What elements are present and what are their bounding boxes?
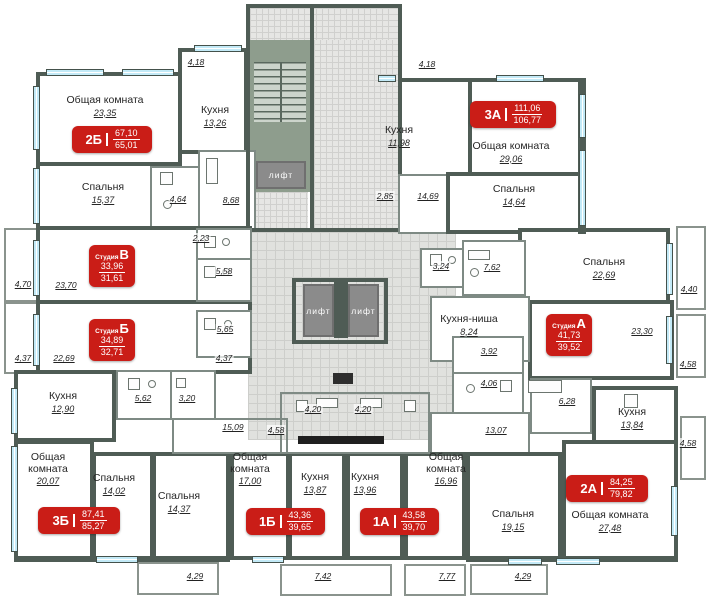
room-name: Кухня xyxy=(618,407,646,419)
balcony xyxy=(470,564,548,595)
fixture-icon xyxy=(470,268,479,277)
fixture-icon xyxy=(148,380,156,388)
wall-segment xyxy=(334,282,348,338)
dimension-label: 4,58 xyxy=(679,438,698,448)
living-area: 79,82 xyxy=(610,489,633,500)
fixture-icon xyxy=(404,400,416,412)
elevator-label: лифт xyxy=(306,306,330,316)
dimension-label: 4,29 xyxy=(186,571,205,581)
room-area: 13,84 xyxy=(618,420,646,430)
dimension-label: 8,68 xyxy=(222,195,241,205)
room-label: Спальня14,64 xyxy=(493,184,535,207)
balcony xyxy=(680,416,706,480)
fixture-icon xyxy=(128,378,140,390)
total-area: 87,41 xyxy=(80,509,107,521)
total-area: 43,36 xyxy=(287,510,314,522)
room-name: Спальня xyxy=(583,257,625,269)
window xyxy=(579,150,586,226)
dimension-label: 15,09 xyxy=(221,422,244,432)
room-area: 17,00 xyxy=(221,476,279,486)
apartment-badge[interactable]: 2Б67,1065,01 xyxy=(72,126,152,153)
badge-header: СтудияА xyxy=(552,317,586,330)
room-name: Кухня xyxy=(201,105,229,117)
window xyxy=(194,45,242,52)
apartment-badge[interactable]: 3А111,06106,77 xyxy=(470,101,556,128)
room-name: Спальня xyxy=(93,473,135,485)
balcony xyxy=(137,562,219,595)
room-label: Кухня13,87 xyxy=(301,472,329,495)
dimension-label: 4,20 xyxy=(304,404,323,414)
window xyxy=(33,168,40,224)
dimension-label: 4,37 xyxy=(14,353,33,363)
room-name: Спальня xyxy=(493,184,535,196)
apartment-code: 1Б xyxy=(253,515,282,528)
dimension-label: 3,24 xyxy=(432,261,451,271)
room-label: Спальня14,37 xyxy=(158,491,200,514)
living-area: 65,01 xyxy=(115,140,138,151)
living-area: 31,61 xyxy=(101,273,124,284)
apartment-code: Б xyxy=(120,322,129,335)
room-area: 13,96 xyxy=(351,485,379,495)
dimension-label: 4,06 xyxy=(480,378,499,388)
room-label: Общая комната27,48 xyxy=(572,510,649,533)
dimension-label: 4,64 xyxy=(169,194,188,204)
apartment-badge[interactable]: СтудияА41,7339,52 xyxy=(546,314,592,356)
dimension-label: 4,40 xyxy=(680,284,699,294)
dimension-label: 2,23 xyxy=(192,233,211,243)
badge-areas: 84,2579,82 xyxy=(603,477,640,500)
fixture-icon xyxy=(176,378,186,388)
wall-segment xyxy=(333,373,353,384)
room-label: Кухня11,98 xyxy=(385,125,413,148)
living-area: 85,27 xyxy=(82,521,105,532)
room-name: Кухня xyxy=(351,472,379,484)
room-name: Общая комната xyxy=(19,452,77,475)
window xyxy=(252,556,284,563)
apartment-code: 2Б xyxy=(79,133,108,146)
room-box xyxy=(452,336,524,376)
badge-areas: 33,9631,61 xyxy=(94,261,131,284)
living-area: 106,77 xyxy=(514,115,542,126)
room-label: Спальня19,15 xyxy=(492,509,534,532)
room-box xyxy=(196,258,252,302)
fixture-icon xyxy=(528,380,562,393)
room-box xyxy=(346,452,404,560)
room-box xyxy=(466,452,562,562)
apartment-badge[interactable]: 1Б43,3639,65 xyxy=(246,508,325,535)
fixture-icon xyxy=(466,384,475,393)
fixture-icon xyxy=(160,172,173,185)
room-name: Общая комната xyxy=(417,452,475,475)
living-area: 32,71 xyxy=(101,347,124,358)
apartment-badge[interactable]: СтудияБ34,8932,71 xyxy=(89,319,135,361)
room-name: Кухня xyxy=(385,125,413,137)
total-area: 84,25 xyxy=(608,477,635,489)
apartment-code: А xyxy=(577,317,586,330)
room-area: 12,90 xyxy=(49,404,77,414)
dimension-label: 5,65 xyxy=(216,324,235,334)
dimension-label: 6,28 xyxy=(558,396,577,406)
room-label: Спальня22,69 xyxy=(583,257,625,280)
apartment-code: 2А xyxy=(574,482,603,495)
room-name: Общая комната xyxy=(473,141,550,153)
badge-header: СтудияБ xyxy=(95,322,129,335)
total-area: 67,10 xyxy=(113,128,140,140)
room-area: 8,24 xyxy=(440,327,498,337)
window xyxy=(96,556,138,563)
room-area: 29,06 xyxy=(473,154,550,164)
window xyxy=(508,558,542,565)
window xyxy=(378,75,396,82)
fixture-icon xyxy=(500,380,512,392)
living-area: 39,65 xyxy=(289,522,312,533)
dimension-label: 4,18 xyxy=(418,59,437,69)
badge-areas: 87,4185,27 xyxy=(75,509,112,532)
window xyxy=(11,388,18,434)
room-name: Спальня xyxy=(82,182,124,194)
room-label: Кухня13,84 xyxy=(618,407,646,430)
room-name: Спальня xyxy=(492,509,534,521)
room-name: Спальня xyxy=(158,491,200,503)
apartment-badge[interactable]: 3Б87,4185,27 xyxy=(38,507,120,534)
apartment-badge[interactable]: 1А43,5839,70 xyxy=(360,508,439,535)
dimension-label: 7,62 xyxy=(483,262,502,272)
room-name: Кухня xyxy=(301,472,329,484)
room-label: Общая комната16,96 xyxy=(417,452,475,486)
apartment-badge[interactable]: 2А84,2579,82 xyxy=(566,475,648,502)
dimension-label: 4,37 xyxy=(215,353,234,363)
room-box xyxy=(288,452,346,560)
fixture-icon xyxy=(468,250,490,260)
room-label: Спальня14,02 xyxy=(93,473,135,496)
dimension-label: 4,70 xyxy=(14,279,33,289)
room-label: Общая комната23,35 xyxy=(67,95,144,118)
apartment-code: 3Б xyxy=(46,514,75,527)
room-label: Спальня15,37 xyxy=(82,182,124,205)
badge-areas: 43,5839,70 xyxy=(396,510,433,533)
fixture-icon xyxy=(222,238,230,246)
room-label: Кухня13,26 xyxy=(201,105,229,128)
apartment-code: В xyxy=(120,248,129,261)
total-area: 111,06 xyxy=(512,103,542,115)
dimension-label: 3,92 xyxy=(480,346,499,356)
badge-areas: 67,1065,01 xyxy=(108,128,145,151)
living-area: 39,70 xyxy=(403,522,426,533)
room-area: 13,26 xyxy=(201,118,229,128)
elevator-car: лифт xyxy=(303,284,334,337)
room-label: Кухня-ниша8,24 xyxy=(440,314,498,337)
window xyxy=(556,558,600,565)
elevator-car: лифт xyxy=(256,161,306,189)
room-area: 16,96 xyxy=(417,476,475,486)
room-name: Общая комната xyxy=(572,510,649,522)
badge-header: СтудияВ xyxy=(95,248,129,261)
window xyxy=(666,243,673,295)
room-name: Общая комната xyxy=(221,452,279,475)
room-area: 14,02 xyxy=(93,486,135,496)
window xyxy=(671,486,678,536)
badge-areas: 43,3639,65 xyxy=(282,510,319,533)
room-area: 14,64 xyxy=(493,197,535,207)
dimension-label: 23,70 xyxy=(54,280,77,290)
room-area: 14,37 xyxy=(158,504,200,514)
room-label: Общая комната29,06 xyxy=(473,141,550,164)
room-area: 27,48 xyxy=(572,523,649,533)
dimension-label: 13,07 xyxy=(484,425,507,435)
elevator-car: лифт xyxy=(348,284,379,337)
window xyxy=(496,75,544,82)
total-area: 41,73 xyxy=(556,330,583,342)
window xyxy=(33,314,40,366)
dimension-label: 14,69 xyxy=(416,191,439,201)
balcony xyxy=(404,564,466,596)
window xyxy=(11,446,18,552)
window xyxy=(33,240,40,296)
total-area: 33,96 xyxy=(99,261,126,273)
room-area: 20,07 xyxy=(19,476,77,486)
dimension-label: 3,20 xyxy=(178,393,197,403)
living-area: 39,52 xyxy=(558,342,581,353)
dimension-label: 22,69 xyxy=(52,353,75,363)
total-area: 43,58 xyxy=(401,510,428,522)
room-label: Кухня13,96 xyxy=(351,472,379,495)
balcony xyxy=(676,226,706,310)
dimension-label: 5,62 xyxy=(134,393,153,403)
dimension-label: 7,77 xyxy=(438,571,457,581)
dimension-label: 4,58 xyxy=(679,359,698,369)
room-name: Кухня-ниша xyxy=(440,314,498,326)
dimension-label: 4,58 xyxy=(267,425,286,435)
room-label: Кухня12,90 xyxy=(49,391,77,414)
wall-segment xyxy=(298,436,384,444)
dimension-label: 4,18 xyxy=(187,57,206,67)
badge-areas: 34,8932,71 xyxy=(94,335,131,358)
badge-prefix: Студия xyxy=(95,254,118,261)
room-box xyxy=(246,4,314,232)
floor-plan: лифтлифтлифт 2Б67,1065,013А111,06106,773… xyxy=(0,0,709,600)
window xyxy=(33,86,40,150)
badge-areas: 41,7339,52 xyxy=(551,330,588,353)
fixture-icon xyxy=(206,158,218,184)
room-area: 15,37 xyxy=(82,195,124,205)
dimension-label: 4,20 xyxy=(354,404,373,414)
room-box xyxy=(92,452,154,560)
badge-prefix: Студия xyxy=(552,323,575,330)
window xyxy=(666,316,673,364)
apartment-badge[interactable]: СтудияВ33,9631,61 xyxy=(89,245,135,287)
total-area: 34,89 xyxy=(99,335,126,347)
elevator-label: лифт xyxy=(351,306,375,316)
dimension-label: 5,58 xyxy=(215,266,234,276)
room-area: 13,87 xyxy=(301,485,329,495)
balcony xyxy=(280,564,392,596)
window xyxy=(579,94,586,138)
dimension-label: 4,29 xyxy=(514,571,533,581)
room-label: Общая комната17,00 xyxy=(221,452,279,486)
badge-prefix: Студия xyxy=(95,328,118,335)
room-label: Общая комната20,07 xyxy=(19,452,77,486)
room-area: 11,98 xyxy=(385,138,413,148)
badge-areas: 111,06106,77 xyxy=(507,103,547,126)
fixture-icon xyxy=(204,318,216,330)
elevator-label: лифт xyxy=(269,170,293,180)
window xyxy=(46,69,104,76)
room-area: 23,35 xyxy=(67,108,144,118)
dimension-label: 23,30 xyxy=(630,326,653,336)
dimension-label: 2,85 xyxy=(376,191,395,201)
room-name: Общая комната xyxy=(67,95,144,107)
room-area: 19,15 xyxy=(492,522,534,532)
apartment-code: 3А xyxy=(479,108,508,121)
room-area: 22,69 xyxy=(583,270,625,280)
room-name: Кухня xyxy=(49,391,77,403)
window xyxy=(122,69,174,76)
apartment-code: 1А xyxy=(367,515,396,528)
dimension-label: 7,42 xyxy=(314,571,333,581)
